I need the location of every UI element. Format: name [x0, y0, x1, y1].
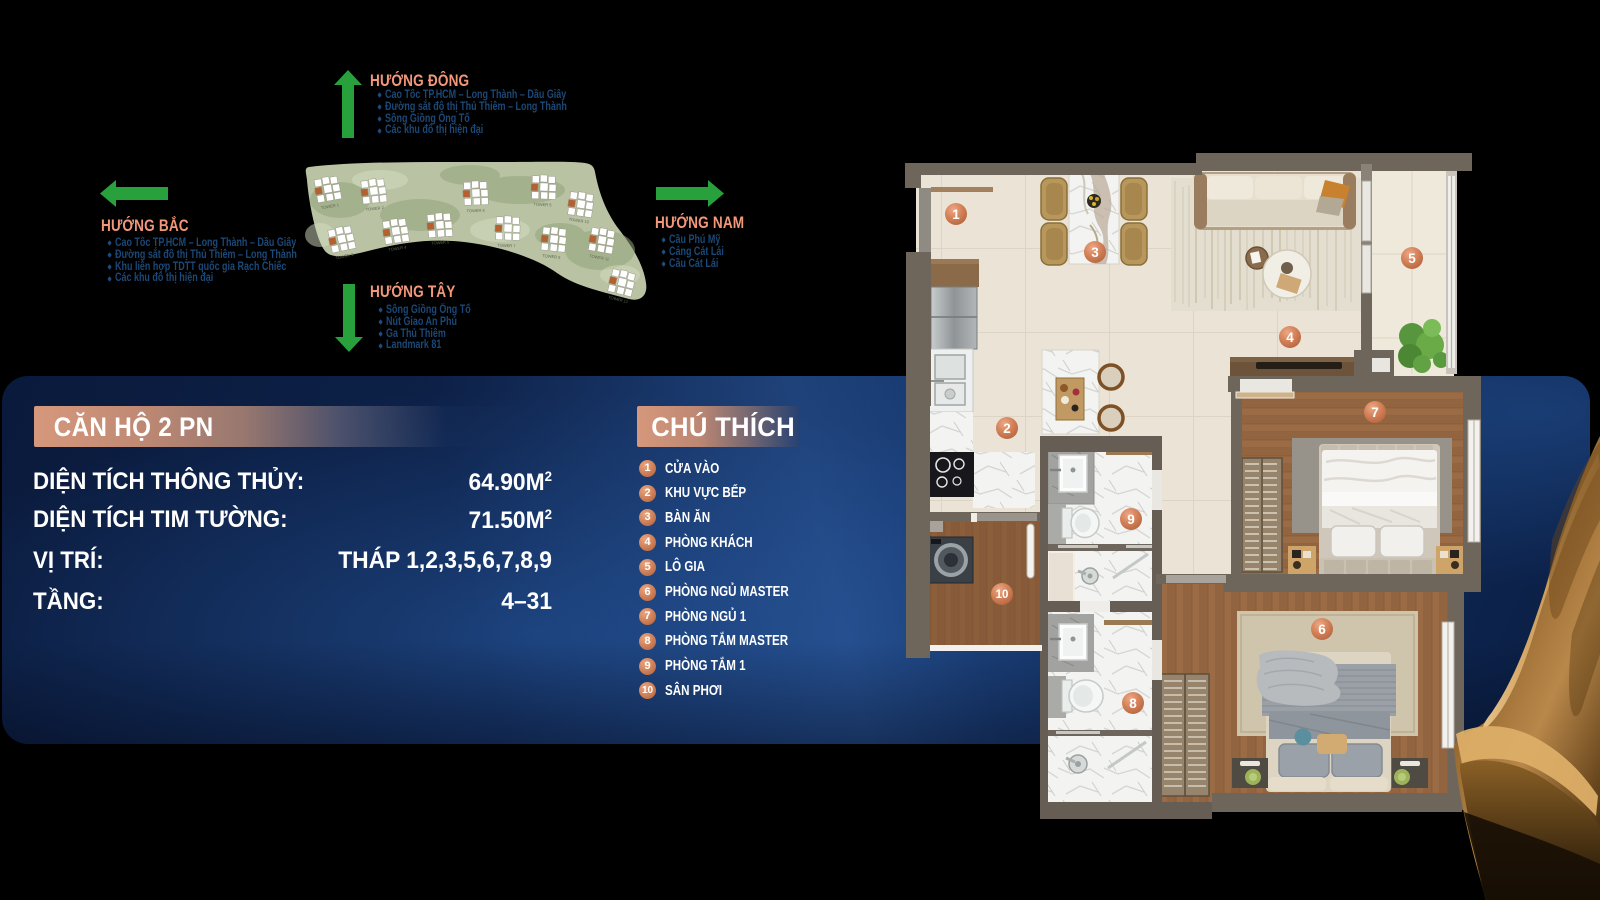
svg-text:2: 2 [1003, 421, 1011, 436]
svg-text:5: 5 [1408, 251, 1416, 266]
svg-text:TOWER 5: TOWER 5 [431, 239, 450, 245]
svg-text:4: 4 [1286, 330, 1294, 345]
svg-text:7: 7 [1371, 405, 1379, 420]
svg-text:TOWER 7: TOWER 7 [497, 243, 516, 249]
svg-text:10: 10 [996, 589, 1009, 601]
svg-text:9: 9 [1127, 512, 1135, 527]
svg-text:TOWER 8: TOWER 8 [466, 208, 485, 214]
svg-text:3: 3 [1091, 245, 1099, 260]
svg-text:8: 8 [1129, 696, 1137, 711]
svg-text:TOWER 5: TOWER 5 [533, 202, 552, 208]
svg-text:1: 1 [952, 207, 960, 222]
svg-text:6: 6 [1318, 622, 1326, 637]
